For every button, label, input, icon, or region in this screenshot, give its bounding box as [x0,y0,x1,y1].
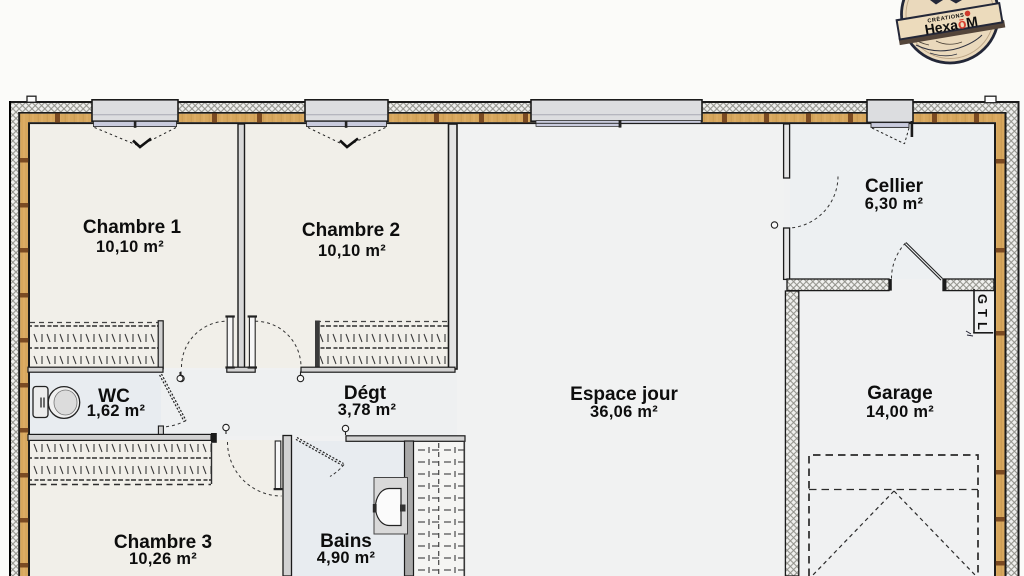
svg-text:G: G [975,294,990,304]
svg-text:1,62 m²: 1,62 m² [87,402,146,420]
svg-text:T: T [975,309,990,317]
svg-text:10,10 m²: 10,10 m² [318,242,386,260]
svg-text:3,78 m²: 3,78 m² [338,401,397,419]
svg-text:Cellier: Cellier [865,176,924,197]
svg-text:4,90 m²: 4,90 m² [317,549,376,567]
svg-text:36,06 m²: 36,06 m² [590,403,658,421]
svg-text:Garage: Garage [867,383,932,404]
svg-text:L: L [975,322,990,330]
svg-text:10,10 m²: 10,10 m² [96,238,164,256]
svg-text:6,30 m²: 6,30 m² [865,195,924,213]
svg-text:Chambre 1: Chambre 1 [83,217,182,238]
svg-text:Chambre 2: Chambre 2 [302,220,400,241]
svg-text:Espace jour: Espace jour [570,384,678,405]
svg-text:10,26 m²: 10,26 m² [129,550,197,568]
svg-text:14,00 m²: 14,00 m² [866,403,934,421]
